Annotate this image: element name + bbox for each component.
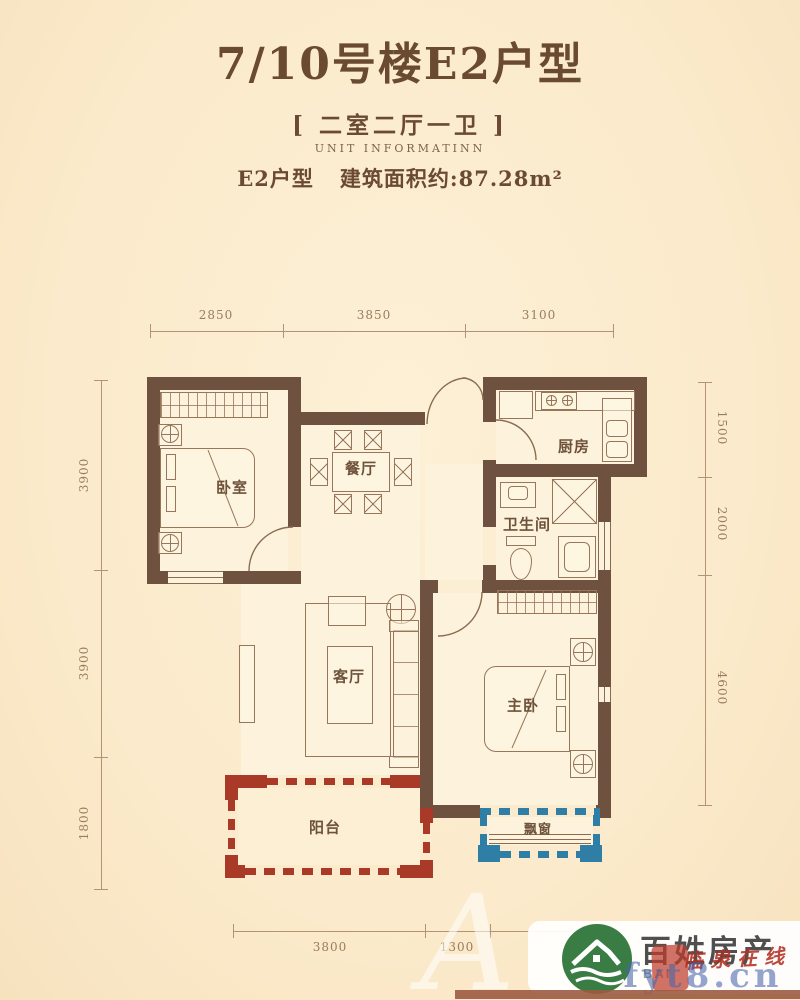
dimension-value: 1800 [77, 806, 91, 841]
door-arcs-overlay [0, 0, 800, 1000]
dimension-value: 3850 [357, 308, 392, 322]
dimension-tick [94, 757, 108, 758]
dimension-tick [150, 324, 151, 338]
dimension-tick [465, 324, 466, 338]
room-label-bay-window: 飘窗 [524, 819, 552, 838]
shower-corner-line [552, 479, 597, 524]
dimension-tick [698, 382, 712, 383]
dimension-value: 3100 [522, 308, 557, 322]
dimension-line [705, 382, 706, 805]
bedroom-door-arc [249, 527, 293, 571]
watermark-bottom-strip [455, 990, 800, 999]
dimension-tick [698, 805, 712, 806]
ghost-letter-watermark: A [420, 878, 515, 1000]
dimension-value: 1500 [715, 411, 729, 446]
dimension-value: 3900 [77, 458, 91, 493]
room-label-dining: 餐厅 [345, 458, 377, 479]
room-label-living: 客厅 [333, 666, 365, 687]
dimension-line [101, 380, 102, 889]
room-label-bathroom: 卫生间 [503, 514, 551, 535]
dimension-tick [233, 924, 234, 938]
room-label-bedroom: 卧室 [216, 477, 248, 498]
room-label-master: 主卧 [507, 695, 539, 716]
dimension-tick [613, 324, 614, 338]
dimension-value: 3900 [77, 646, 91, 681]
dimension-value: 3800 [313, 940, 348, 954]
room-label-balcony: 阳台 [309, 817, 341, 838]
dimension-line [150, 331, 613, 332]
dimension-tick [698, 575, 712, 576]
dimension-tick [283, 324, 284, 338]
entry-door-arc [463, 378, 483, 400]
dimension-value: 2850 [199, 308, 234, 322]
dimension-value: 2000 [715, 507, 729, 542]
dimension-tick [94, 889, 108, 890]
dimension-tick [698, 477, 712, 478]
dimension-tick [94, 570, 108, 571]
floorplan-page: 7/10号楼E2户型 [ 二室二厅一卫 ] UNIT INFORMATINN E… [0, 0, 800, 1000]
dimension-value: 4600 [715, 671, 729, 706]
entry-door-arc [427, 378, 466, 424]
room-label-kitchen: 厨房 [558, 436, 590, 457]
dimension-tick [94, 380, 108, 381]
kitchen-door-arc [496, 420, 536, 460]
master-door-arc [438, 592, 482, 636]
